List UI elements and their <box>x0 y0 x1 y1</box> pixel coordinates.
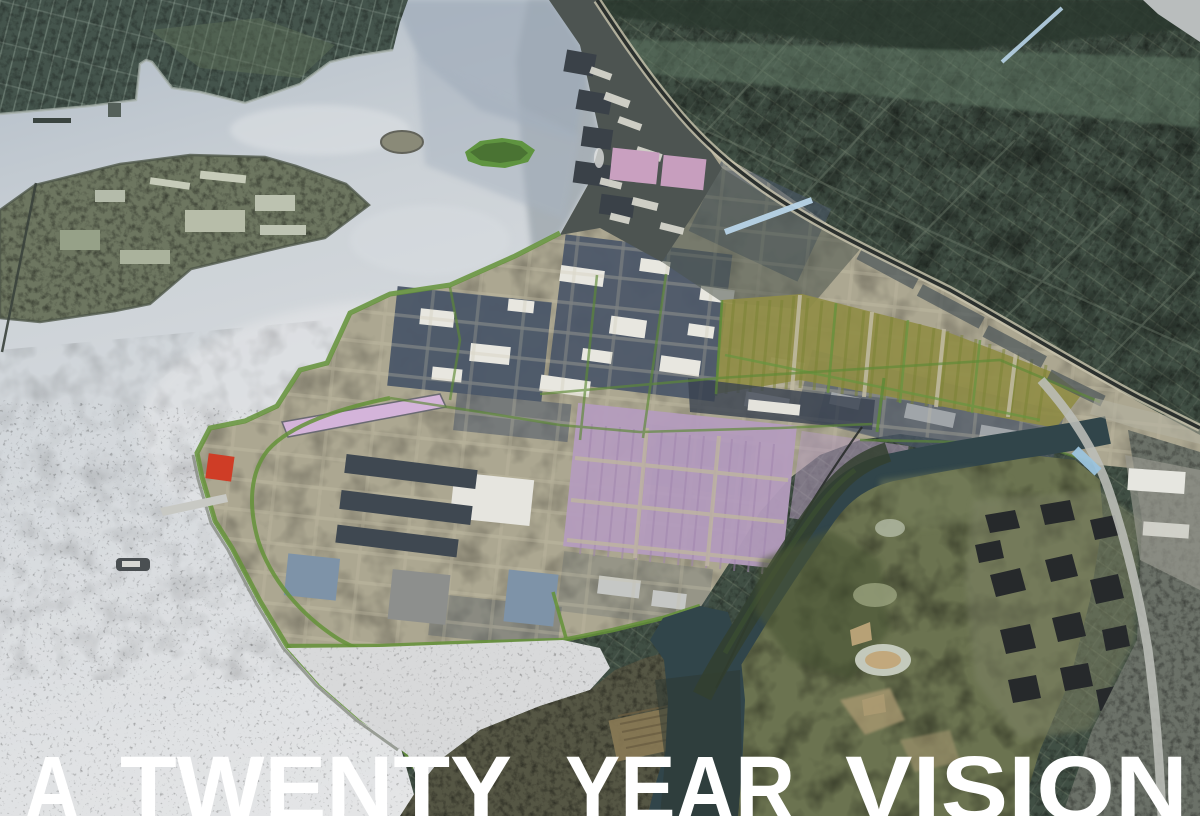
svg-text:TWENTY: TWENTY <box>120 738 512 816</box>
svg-text:YEAR: YEAR <box>565 738 795 816</box>
svg-text:A: A <box>24 738 80 816</box>
svg-text:VISION: VISION <box>845 738 1188 816</box>
